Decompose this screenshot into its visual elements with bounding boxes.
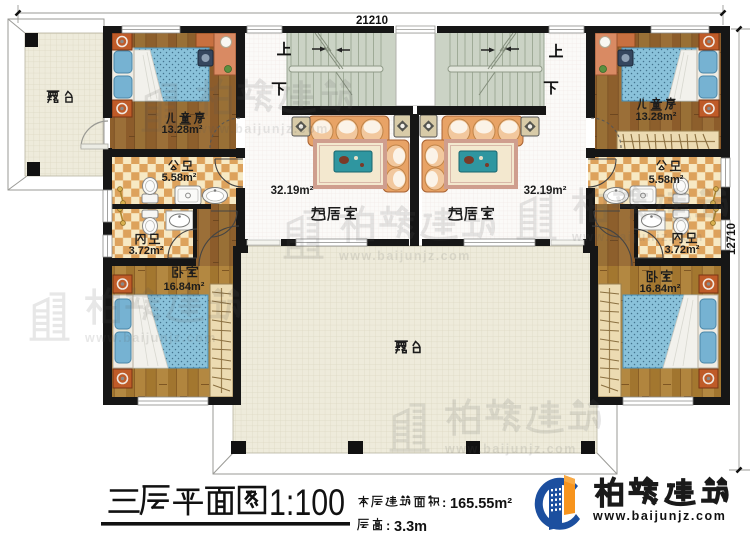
svg-text:1:100: 1:100 (269, 482, 345, 523)
svg-text::: : (386, 518, 390, 533)
svg-text:www.baijunjz.com: www.baijunjz.com (592, 509, 726, 523)
svg-text::: : (442, 495, 446, 510)
svg-text:3.72m²: 3.72m² (129, 245, 164, 257)
svg-text:3.3m: 3.3m (394, 519, 427, 535)
svg-text:16.84m²: 16.84m² (164, 281, 205, 293)
svg-text:5.58m²: 5.58m² (162, 172, 197, 184)
svg-text:165.55m²: 165.55m² (450, 496, 512, 512)
svg-text:3.72m²: 3.72m² (665, 244, 700, 256)
svg-text:16.84m²: 16.84m² (640, 283, 681, 295)
svg-text:13.28m²: 13.28m² (162, 124, 203, 136)
svg-text:32.19m²: 32.19m² (524, 185, 567, 197)
svg-text:32.19m²: 32.19m² (271, 185, 314, 197)
svg-text:12710: 12710 (726, 223, 738, 255)
svg-text:13.28m²: 13.28m² (636, 111, 677, 123)
svg-text:21210: 21210 (356, 15, 388, 27)
svg-text:5.58m²: 5.58m² (649, 174, 684, 186)
